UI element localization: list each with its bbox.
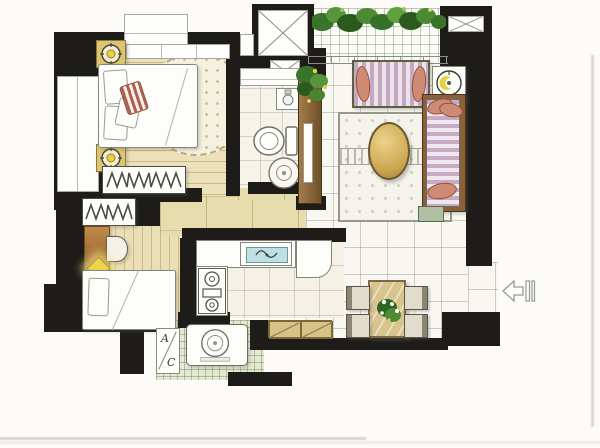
single-bed	[82, 270, 176, 330]
wall-utility-right	[250, 320, 270, 350]
refrigerator	[296, 240, 332, 278]
ac-label-bottom: C	[167, 357, 175, 368]
flower-centerpiece-icon	[374, 294, 404, 326]
scan-edge-right	[591, 55, 594, 427]
wall-bedroom1-bathroom	[226, 54, 240, 196]
dining-chair	[346, 314, 370, 338]
ac-label-top: A	[161, 333, 169, 344]
wall-bottom-main	[256, 338, 448, 350]
washer-drum-icon	[187, 325, 247, 365]
entry-arrow-icon	[500, 272, 536, 310]
entry-arrow	[500, 272, 536, 310]
washing-machine	[186, 324, 248, 366]
plant-side-table	[418, 206, 444, 222]
x-mark-icon	[449, 17, 483, 31]
dining-chair	[404, 286, 428, 310]
chair-back	[422, 287, 427, 309]
daybed	[422, 94, 466, 212]
dining-chair	[346, 286, 370, 310]
duvet-fold	[165, 68, 188, 145]
wall-kitchen-left	[180, 238, 196, 318]
chair-back	[422, 315, 427, 337]
wall-right	[466, 60, 492, 266]
floor-drain	[266, 156, 302, 190]
coffee-table	[368, 122, 410, 180]
bathroom-shelf	[240, 68, 302, 86]
double-bed	[98, 64, 198, 148]
window-notch-top	[240, 34, 254, 56]
dining-chair	[404, 314, 428, 338]
drain-icon	[266, 156, 302, 190]
sideboard-cabinet	[268, 320, 332, 338]
faucet-icon	[253, 245, 281, 259]
wardrobe-bedroom1	[102, 166, 186, 194]
bed-pillow	[87, 278, 109, 317]
wardrobe-bedroom2	[82, 198, 136, 226]
dining-table	[368, 280, 406, 338]
duct-shaft-large	[258, 10, 308, 56]
kitchen-sink	[240, 242, 292, 266]
window-left-bedroom1	[57, 76, 99, 192]
ac-unit-box: A C	[156, 328, 180, 374]
hanger-marks-icon	[83, 199, 135, 225]
wall-step-utility-left	[120, 330, 144, 374]
floor-plan: A C	[0, 0, 600, 448]
balcony-plants	[312, 2, 446, 42]
wall-bottomright-block	[442, 312, 500, 346]
duvet-fold	[112, 270, 140, 331]
wall-left-bedroom2-upper	[56, 192, 84, 292]
wall-utility-bottom	[228, 372, 292, 386]
sofa	[352, 60, 430, 108]
cabinet-doors-icon	[269, 321, 333, 339]
table-lamp-icon	[99, 42, 123, 66]
window-ledge-top	[124, 14, 188, 46]
burners-icon	[199, 269, 225, 313]
headboard-shelf	[126, 44, 230, 59]
x-mark-icon	[259, 11, 307, 55]
tv-screen	[303, 123, 313, 183]
scan-edge-bottom	[0, 437, 366, 440]
stove	[198, 268, 226, 314]
hanger-marks-icon	[103, 167, 185, 193]
plant-icon	[294, 62, 332, 108]
desk-chair	[106, 236, 128, 262]
scan-edge-bottom2	[0, 441, 600, 444]
cabinet-plant	[294, 62, 332, 108]
chair-back	[347, 287, 352, 309]
chair-back	[347, 315, 352, 337]
sofa-pillow	[354, 65, 371, 102]
window-topright	[448, 16, 484, 32]
plants-icon	[312, 2, 446, 42]
floor-entry	[468, 262, 498, 318]
